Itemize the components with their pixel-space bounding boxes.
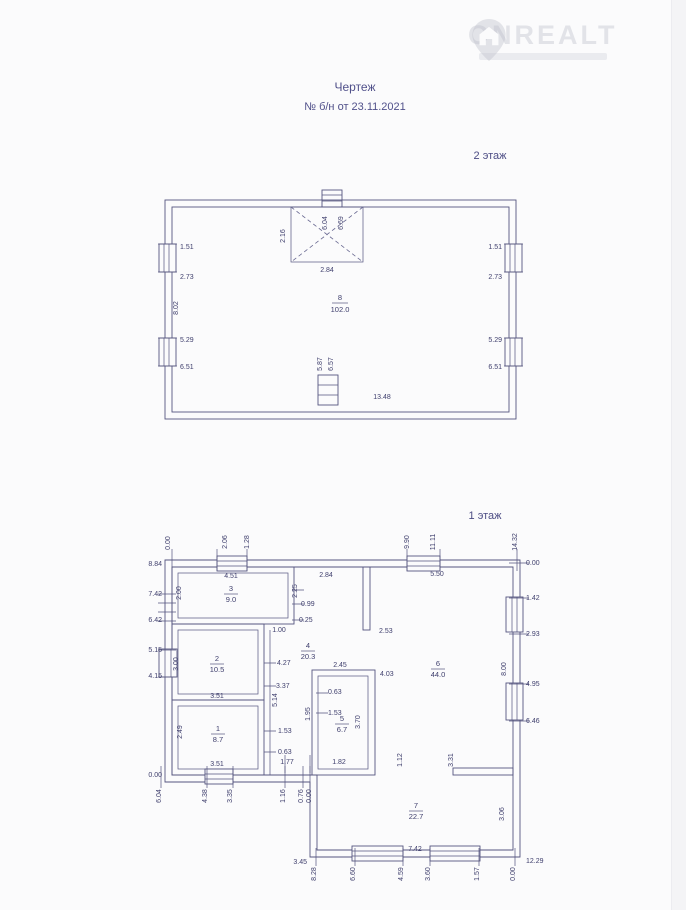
dim-label: 5.14	[272, 693, 279, 707]
dim-label: 14.32	[512, 533, 519, 551]
dim-label: 11.11	[430, 534, 437, 551]
dim-label: 2.16	[280, 229, 287, 243]
dim-label: 8.28	[311, 867, 318, 881]
dim-label: 2.00	[176, 586, 183, 600]
dim-label: 6.42	[148, 617, 162, 624]
dim-label: 8.84	[148, 561, 162, 568]
dim-label: 1.57	[474, 867, 481, 881]
dim-label: 6.51	[488, 364, 502, 371]
dim-label: 6.51	[180, 364, 194, 371]
drawing-title: Чертеж № б/н от 23.11.2021	[230, 80, 480, 113]
dim-label: 4.38	[202, 789, 209, 803]
dim-label: 4.03	[380, 671, 394, 678]
dim-label: 6.04	[322, 216, 329, 230]
dim-label: 5.15	[148, 647, 162, 654]
dim-label: 0.00	[165, 536, 172, 550]
dim-label: 4.27	[277, 660, 291, 667]
room-number: 2	[215, 654, 219, 663]
dim-label: 0.00	[306, 789, 313, 803]
dim-label: 0.99	[301, 601, 315, 608]
title-text: Чертеж	[230, 80, 480, 94]
room-area: 22.7	[409, 812, 424, 821]
dim-label: 1.12	[397, 753, 404, 767]
dim-label: 6.04	[156, 789, 163, 803]
room-8-label: 8 102.0	[331, 293, 350, 314]
room-number: 6	[436, 659, 440, 668]
room-labels: 1 8.7 2 10.5 3 9.0 4 20.3 5 6.7 6 44.0 7…	[210, 584, 446, 821]
dim-label: 0.00	[510, 867, 517, 881]
dim-label: 5.29	[180, 337, 194, 344]
dim-label: 3.51	[210, 693, 224, 700]
dim-label: 4.51	[224, 573, 238, 580]
dim-label: 0.00	[148, 772, 162, 779]
dim-label: 1.51	[488, 244, 502, 251]
room-number: 7	[414, 801, 418, 810]
floor1-plan: 0.00 2.06 1.28 9.90 11.11 14.32 8.84 7.4…	[140, 530, 540, 885]
dim-label: 4.15	[148, 673, 162, 680]
dim-label: 2.73	[180, 274, 194, 281]
floor1-label: 1 этаж	[440, 510, 530, 522]
floor2-plan: 6.04 6.69 2.16 2.84 5.87 6.57 13.48 1.51…	[150, 190, 530, 435]
dim-label: 2.84	[319, 572, 333, 579]
dim-label: 1.95	[305, 707, 312, 721]
skylight-void	[291, 207, 363, 262]
dim-label: 0.00	[526, 560, 540, 567]
dim-label: 3.00	[173, 657, 180, 671]
dim-label: 6.69	[338, 216, 345, 230]
dim-label: 13.48	[373, 394, 391, 401]
dim-label: 7.42	[408, 846, 422, 853]
dim-label: 1.51	[180, 244, 194, 251]
window	[159, 556, 523, 861]
dim-label: 1.28	[244, 535, 251, 549]
dim-label: 9.90	[404, 535, 411, 549]
dim-label: 7.42	[148, 591, 162, 598]
dim-label: 1.42	[526, 595, 540, 602]
room-number: 3	[229, 584, 233, 593]
dim-label: 5.50	[430, 571, 444, 578]
dim-label: 6.57	[328, 357, 335, 371]
dim-label: 2.53	[379, 628, 393, 635]
dim-label: 5.87	[317, 357, 324, 371]
dimension-lines	[158, 549, 529, 866]
dim-label: 0.63	[328, 689, 342, 696]
dim-label: 1.16	[280, 789, 287, 803]
dim-label: 8.00	[501, 662, 508, 676]
dim-label: 0.76	[298, 789, 305, 803]
dim-label: 1.77	[280, 759, 294, 766]
dim-label: 6.60	[350, 867, 357, 881]
room-number: 8	[338, 293, 342, 302]
room-number: 4	[306, 641, 310, 650]
roof-hatch	[322, 190, 342, 207]
dim-label: 2.93	[526, 631, 540, 638]
dim-label: 3.35	[227, 789, 234, 803]
room-area: 9.0	[226, 595, 236, 604]
dim-label: 2.73	[488, 274, 502, 281]
floor2-label: 2 этаж	[445, 150, 535, 162]
dim-label: 3.37	[276, 683, 290, 690]
scan-edge	[671, 0, 686, 910]
room-area: 10.5	[210, 665, 225, 674]
room-number: 5	[340, 714, 344, 723]
room-area: 6.7	[337, 725, 347, 734]
dim-label: 8.02	[173, 301, 180, 315]
dim-label: 0.25	[299, 617, 313, 624]
floor1-dim-labels: 0.00 2.06 1.28 9.90 11.11 14.32 8.84 7.4…	[148, 533, 543, 881]
dim-label: 1.53	[278, 728, 292, 735]
chimney	[318, 375, 338, 405]
dim-label: 2.84	[320, 267, 334, 274]
dim-label: 3.45	[293, 859, 307, 866]
watermark-logo: ONREALT	[468, 20, 618, 60]
dim-label: 3.31	[448, 753, 455, 767]
dim-label: 1.82	[332, 759, 346, 766]
dim-label: 2.25	[292, 584, 299, 598]
room-area: 20.3	[301, 652, 316, 661]
dim-label: 3.70	[355, 715, 362, 729]
dim-label: 2.45	[333, 662, 347, 669]
dim-label: 3.60	[425, 867, 432, 881]
dim-label: 2.06	[222, 535, 229, 549]
dim-label: 12.29	[526, 858, 544, 865]
dim-label: 3.51	[210, 761, 224, 768]
dim-label: 1.00	[272, 627, 286, 634]
title-number-date: № б/н от 23.11.2021	[230, 101, 480, 113]
dim-label: 2.49	[177, 725, 184, 739]
dim-label: 4.59	[398, 867, 405, 881]
floor1-walls	[165, 560, 520, 857]
room-number: 1	[216, 724, 220, 733]
dim-label: 3.06	[499, 807, 506, 821]
dim-label: 6.46	[526, 718, 540, 725]
house-pin-icon	[468, 17, 510, 63]
dim-label: 4.95	[526, 681, 540, 688]
dim-label: 5.29	[488, 337, 502, 344]
room-area: 102.0	[331, 305, 350, 314]
dim-label: 0.63	[278, 749, 292, 756]
room-area: 8.7	[213, 735, 223, 744]
room-area: 44.0	[431, 670, 446, 679]
